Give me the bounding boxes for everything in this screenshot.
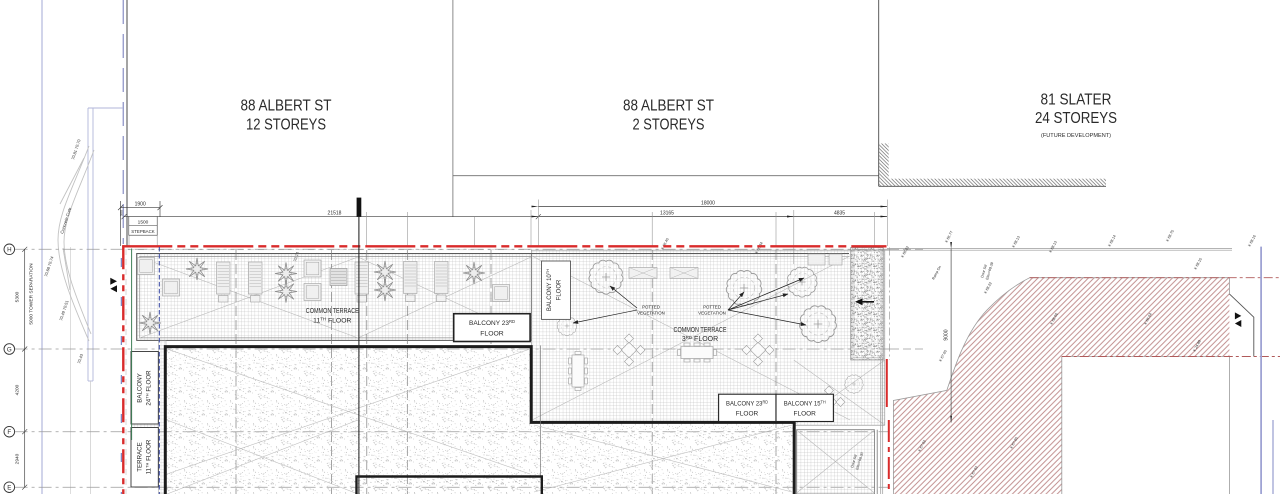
svg-text:24TH FLOOR: 24TH FLOOR xyxy=(145,370,153,406)
svg-text:5300: 5300 xyxy=(15,291,21,302)
svg-text:G: G xyxy=(7,346,12,353)
svg-text:FLOOR: FLOOR xyxy=(557,279,563,300)
svg-text:STEPBACK: STEPBACK xyxy=(131,229,154,234)
svg-text:81 SLATER: 81 SLATER xyxy=(1041,92,1112,109)
svg-text:24 STOREYS: 24 STOREYS xyxy=(1035,110,1117,127)
svg-text:BALCONY 10TH: BALCONY 10TH xyxy=(545,269,553,311)
svg-text:BALCONY 23RD: BALCONY 23RD xyxy=(469,319,515,327)
svg-text:H: H xyxy=(7,247,11,254)
svg-text:88 ALBERT ST: 88 ALBERT ST xyxy=(623,98,714,115)
svg-text:POTTED: POTTED xyxy=(703,305,721,310)
svg-text:TERRACE: TERRACE xyxy=(137,442,144,472)
svg-text:E: E xyxy=(7,485,11,492)
svg-text:2 STOREYS: 2 STOREYS xyxy=(633,117,705,134)
svg-text:88 ALBERT ST: 88 ALBERT ST xyxy=(241,98,332,115)
svg-text:BALCONY: BALCONY xyxy=(137,373,144,403)
svg-text:18000: 18000 xyxy=(701,200,715,206)
svg-text:BALCONY 15TH: BALCONY 15TH xyxy=(784,400,826,408)
svg-text:COMMON TERRACE: COMMON TERRACE xyxy=(306,308,359,315)
svg-text:1500: 1500 xyxy=(138,219,149,225)
svg-text:FLOOR: FLOOR xyxy=(480,331,504,338)
svg-text:2940: 2940 xyxy=(15,453,21,464)
svg-text:POTTED: POTTED xyxy=(642,305,660,310)
svg-text:1900: 1900 xyxy=(135,202,146,208)
svg-text:11TH FLOOR: 11TH FLOOR xyxy=(145,439,153,474)
svg-text:BALCONY 23RD: BALCONY 23RD xyxy=(726,400,768,408)
svg-text:11TH FLOOR: 11TH FLOOR xyxy=(313,317,351,325)
svg-text:VEGETATION: VEGETATION xyxy=(698,311,726,316)
svg-text:12 STOREYS: 12 STOREYS xyxy=(246,117,326,134)
svg-text:4200: 4200 xyxy=(15,384,21,395)
svg-text:COMMON TERRACE: COMMON TERRACE xyxy=(674,327,727,334)
svg-text:(FUTURE DEVELOPMENT): (FUTURE DEVELOPMENT) xyxy=(1041,133,1111,139)
svg-text:F: F xyxy=(7,429,11,436)
svg-text:900: 900 xyxy=(119,210,123,216)
svg-text:13165: 13165 xyxy=(660,210,674,216)
svg-text:VEGETATION: VEGETATION xyxy=(637,311,665,316)
svg-text:FLOOR: FLOOR xyxy=(793,411,816,418)
svg-text:5000 TOWER SEPARATION: 5000 TOWER SEPARATION xyxy=(29,263,35,325)
svg-text:4835: 4835 xyxy=(834,210,845,216)
svg-text:9000: 9000 xyxy=(944,329,950,340)
svg-text:21518: 21518 xyxy=(328,210,342,216)
svg-text:FLOOR: FLOOR xyxy=(736,411,759,418)
